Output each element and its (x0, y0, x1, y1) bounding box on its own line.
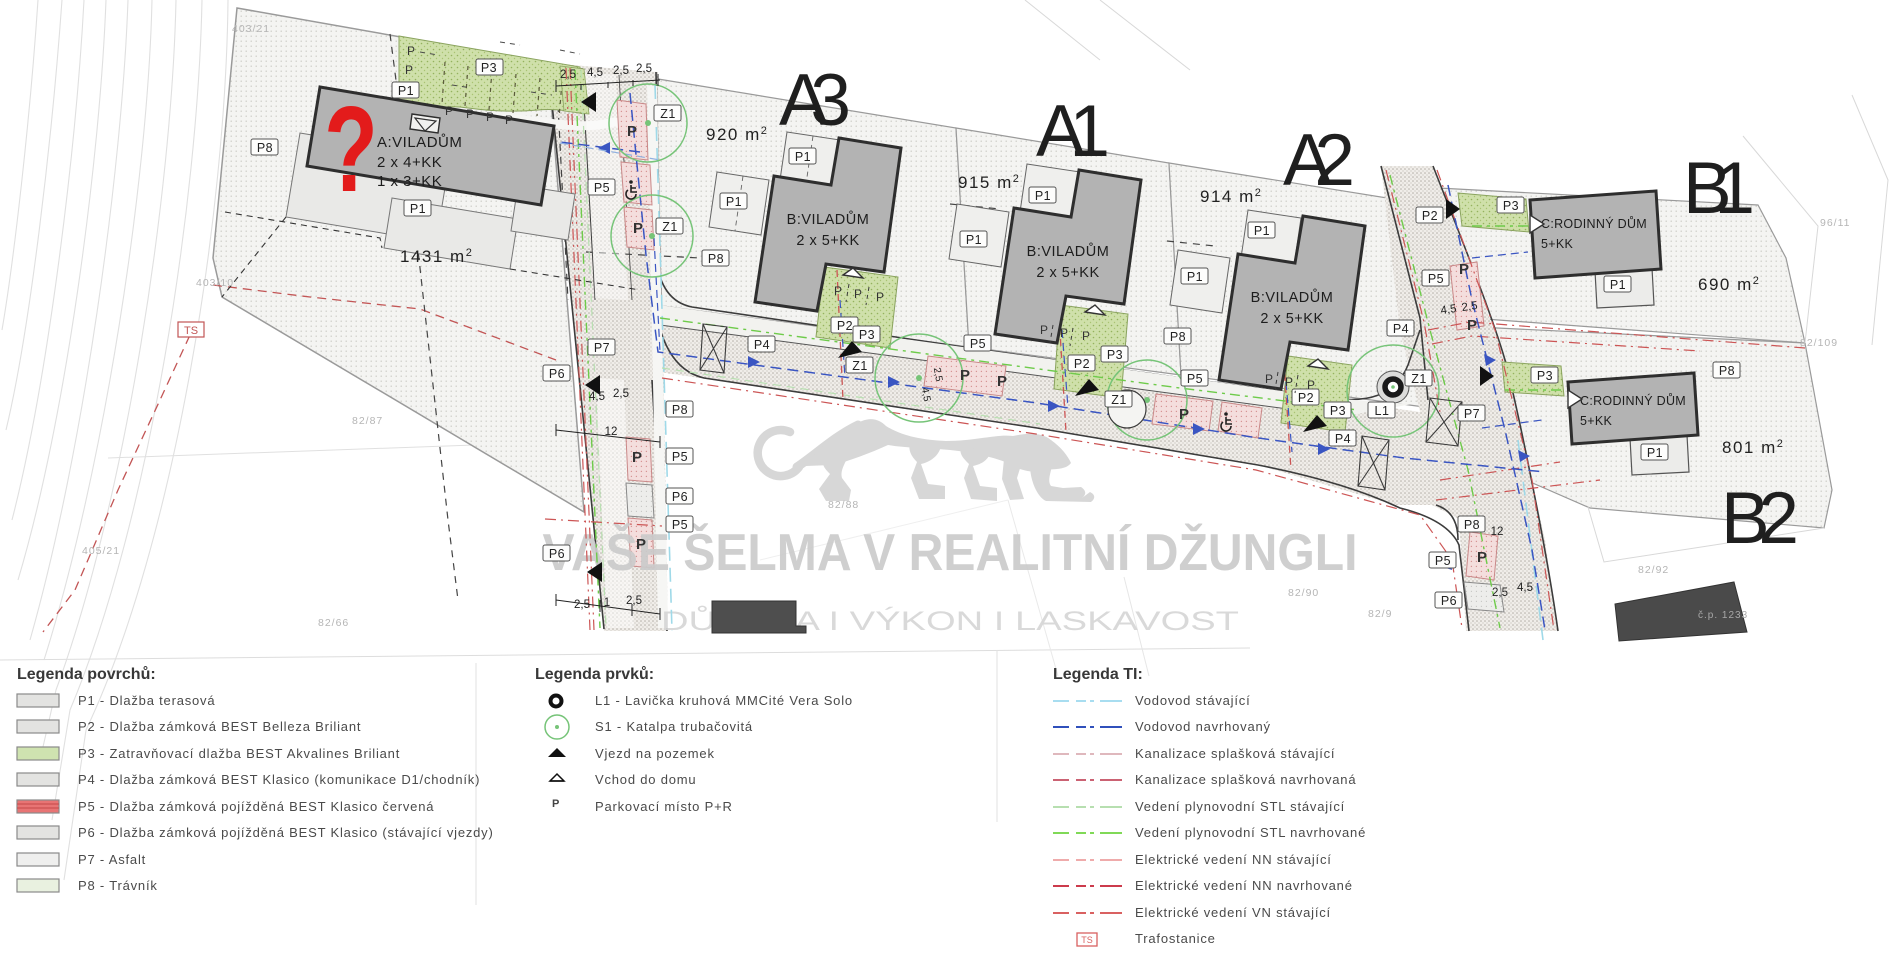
svg-text:P: P (1307, 378, 1315, 392)
svg-text:1 x 3+KK: 1 x 3+KK (377, 173, 442, 190)
svg-text:P3: P3 (1330, 404, 1346, 418)
svg-text:403/21: 403/21 (232, 23, 270, 35)
svg-text:P: P (997, 373, 1007, 390)
svg-text:82/88: 82/88 (828, 499, 859, 511)
svg-text:P: P (445, 104, 453, 118)
svg-text:2,5: 2,5 (613, 388, 629, 400)
svg-text:B2: B2 (1721, 478, 1799, 559)
svg-text:VAŠE ŠELMA V REALITNÍ DŽUNGLI: VAŠE ŠELMA V REALITNÍ DŽUNGLI (543, 523, 1358, 582)
svg-text:TS: TS (184, 325, 198, 337)
svg-text:P1: P1 (1254, 224, 1270, 238)
svg-text:2 x 5+KK: 2 x 5+KK (1036, 265, 1099, 281)
svg-text:P1: P1 (410, 202, 426, 216)
svg-text:P: P (1179, 406, 1189, 423)
svg-text:P: P (505, 113, 513, 127)
svg-text:C:RODINNÝ DŮM: C:RODINNÝ DŮM (1580, 393, 1686, 408)
svg-text:P8: P8 (672, 403, 688, 417)
svg-text:P: P (1060, 326, 1068, 340)
svg-text:B:VILADŮM: B:VILADŮM (1251, 288, 1334, 306)
svg-text:P: P (876, 290, 884, 304)
svg-text:82/87: 82/87 (352, 415, 383, 427)
svg-text:P5: P5 (1187, 372, 1203, 386)
svg-text:P: P (960, 367, 970, 384)
svg-text:82/9: 82/9 (1368, 608, 1392, 620)
svg-text:P1: P1 (795, 150, 811, 164)
svg-text:č.p. 1233: č.p. 1233 (1698, 610, 1748, 621)
svg-text:P1: P1 (726, 195, 742, 209)
svg-text:690 m2: 690 m2 (1698, 275, 1760, 294)
svg-text:C:RODINNÝ DŮM: C:RODINNÝ DŮM (1541, 216, 1647, 231)
svg-text:920 m2: 920 m2 (706, 125, 768, 144)
svg-text:P6: P6 (672, 490, 688, 504)
svg-text:P: P (636, 536, 646, 553)
svg-text:914 m2: 914 m2 (1200, 187, 1262, 206)
svg-text:2 x 4+KK: 2 x 4+KK (377, 154, 442, 171)
svg-text:P8: P8 (1719, 364, 1735, 378)
svg-text:P1: P1 (966, 233, 982, 247)
svg-text:Z1: Z1 (662, 220, 678, 234)
svg-text:P7: P7 (1464, 407, 1480, 421)
svg-text:2,5: 2,5 (626, 595, 642, 607)
svg-text:P6: P6 (549, 367, 565, 381)
svg-text:2,5: 2,5 (636, 63, 652, 75)
svg-text:1431 m2: 1431 m2 (400, 247, 473, 266)
svg-text:Z1: Z1 (1411, 372, 1427, 386)
svg-text:P4: P4 (1335, 432, 1351, 446)
svg-text:P2: P2 (1298, 391, 1314, 405)
svg-text:915 m2: 915 m2 (958, 173, 1020, 192)
svg-text:4,5: 4,5 (589, 391, 605, 403)
svg-text:P2: P2 (837, 319, 853, 333)
svg-text:P4: P4 (754, 338, 770, 352)
svg-text:P: P (632, 449, 642, 466)
svg-text:P3: P3 (1107, 348, 1123, 362)
svg-text:2,5: 2,5 (560, 69, 576, 81)
svg-text:P8: P8 (257, 141, 273, 155)
svg-text:P2: P2 (1422, 209, 1438, 223)
svg-text:P8: P8 (1464, 518, 1480, 532)
svg-text:82/66: 82/66 (318, 617, 349, 629)
svg-text:P: P (627, 123, 637, 140)
svg-text:2 x 5+KK: 2 x 5+KK (1260, 311, 1323, 327)
svg-text:Z1: Z1 (660, 107, 676, 121)
svg-text:P1: P1 (398, 84, 414, 98)
svg-text:P: P (1082, 329, 1090, 343)
svg-text:4,5: 4,5 (1440, 303, 1458, 317)
svg-text:P5: P5 (594, 181, 610, 195)
svg-text:P1: P1 (1610, 278, 1626, 292)
svg-text:B:VILADŮM: B:VILADŮM (787, 210, 870, 228)
svg-text:82/92: 82/92 (1638, 564, 1669, 576)
svg-text:P6: P6 (549, 547, 565, 561)
svg-text:P5: P5 (672, 518, 688, 532)
svg-text:P: P (1467, 317, 1477, 334)
svg-text:Z1: Z1 (1111, 393, 1127, 407)
svg-text:P: P (405, 63, 413, 77)
svg-text:P: P (1459, 261, 1469, 278)
svg-text:A3: A3 (779, 60, 851, 141)
svg-text:82/90: 82/90 (1288, 587, 1319, 599)
svg-text:P: P (1040, 323, 1048, 337)
svg-text:P: P (834, 284, 842, 298)
svg-text:P1: P1 (1035, 189, 1051, 203)
svg-text:P1: P1 (1647, 446, 1663, 460)
svg-text:P3: P3 (481, 61, 497, 75)
svg-text:A2: A2 (1283, 120, 1355, 201)
svg-text:403/10: 403/10 (196, 277, 234, 289)
svg-text:P: P (407, 44, 415, 58)
svg-text:P1: P1 (1187, 270, 1203, 284)
svg-text:P3: P3 (1537, 369, 1553, 383)
svg-text:?: ? (324, 81, 378, 218)
svg-text:A1: A1 (1036, 91, 1110, 172)
svg-text:96/11: 96/11 (1820, 217, 1851, 229)
svg-text:B:VILADŮM: B:VILADŮM (1027, 242, 1110, 260)
svg-text:4,5: 4,5 (587, 67, 603, 79)
svg-text:2,5: 2,5 (613, 65, 629, 77)
svg-text:P4: P4 (1393, 322, 1409, 336)
svg-text:405/21: 405/21 (82, 545, 120, 557)
svg-text:Z1: Z1 (852, 359, 868, 373)
svg-text:P: P (466, 107, 474, 121)
svg-text:P5: P5 (970, 337, 986, 351)
svg-text:P5: P5 (1428, 272, 1444, 286)
svg-text:P3: P3 (1503, 199, 1519, 213)
svg-text:P: P (486, 110, 494, 124)
svg-text:P6: P6 (1441, 594, 1457, 608)
svg-text:4,5: 4,5 (1517, 582, 1533, 594)
svg-text:2,5: 2,5 (1461, 300, 1479, 314)
svg-text:P3: P3 (859, 328, 875, 342)
svg-text:P: P (1285, 375, 1293, 389)
svg-text:2,5: 2,5 (1492, 587, 1508, 599)
svg-text:P: P (1265, 372, 1273, 386)
svg-text:12: 12 (1491, 526, 1504, 538)
svg-text:P2: P2 (1074, 357, 1090, 371)
svg-text:B1: B1 (1683, 148, 1755, 229)
svg-text:P7: P7 (594, 341, 610, 355)
svg-text:5+KK: 5+KK (1580, 414, 1612, 428)
svg-text:P8: P8 (708, 252, 724, 266)
svg-text:P: P (854, 287, 862, 301)
svg-text:2,5: 2,5 (574, 599, 590, 611)
svg-text:801 m2: 801 m2 (1722, 438, 1784, 457)
svg-text:P8: P8 (1170, 330, 1186, 344)
svg-text:5+KK: 5+KK (1541, 237, 1573, 251)
svg-text:L1: L1 (1375, 404, 1390, 418)
svg-text:P5: P5 (672, 450, 688, 464)
svg-text:2 x 5+KK: 2 x 5+KK (796, 233, 859, 249)
svg-text:P: P (633, 220, 643, 237)
svg-text:P5: P5 (1435, 554, 1451, 568)
svg-text:P: P (1477, 549, 1487, 566)
svg-text:A:VILADŮM: A:VILADŮM (377, 133, 462, 151)
